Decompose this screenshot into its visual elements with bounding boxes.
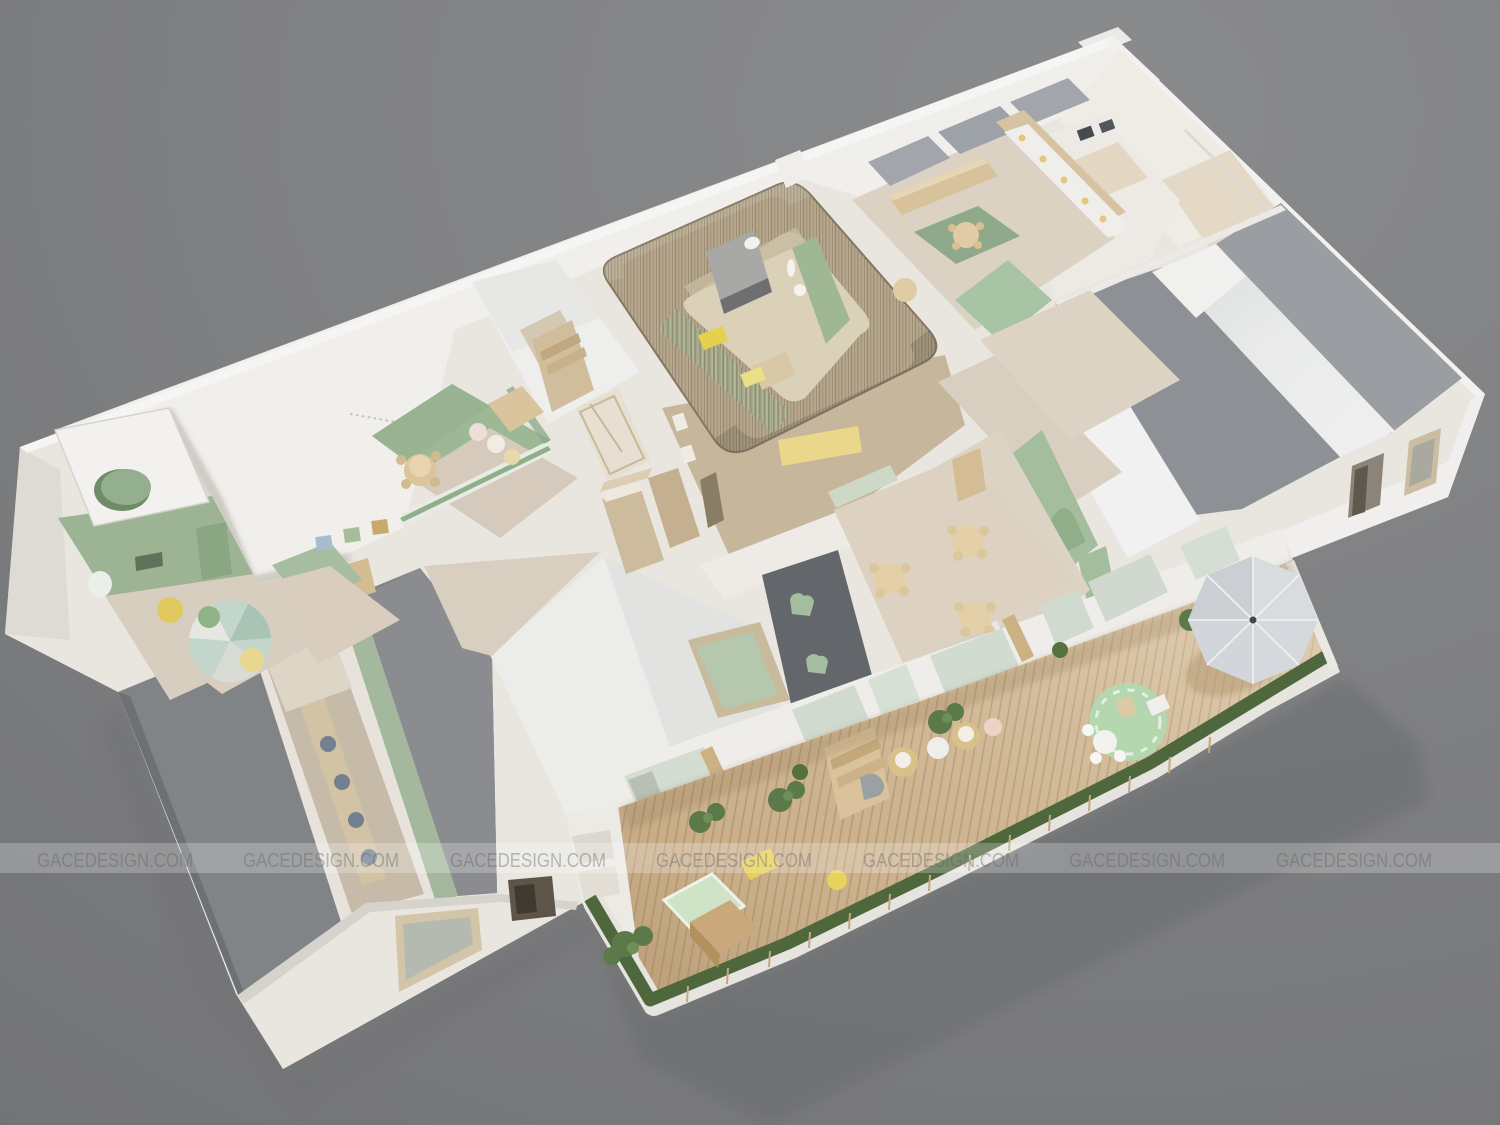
svg-text:GACEDESIGN.COM: GACEDESIGN.COM xyxy=(1069,850,1225,872)
svg-text:GACEDESIGN.COM: GACEDESIGN.COM xyxy=(656,850,812,872)
svg-text:GACEDESIGN.COM: GACEDESIGN.COM xyxy=(37,850,193,872)
svg-text:GACEDESIGN.COM: GACEDESIGN.COM xyxy=(450,850,606,872)
svg-text:GACEDESIGN.COM: GACEDESIGN.COM xyxy=(243,850,399,872)
svg-text:GACEDESIGN.COM: GACEDESIGN.COM xyxy=(863,850,1019,872)
svg-text:GACEDESIGN.COM: GACEDESIGN.COM xyxy=(1276,850,1432,872)
